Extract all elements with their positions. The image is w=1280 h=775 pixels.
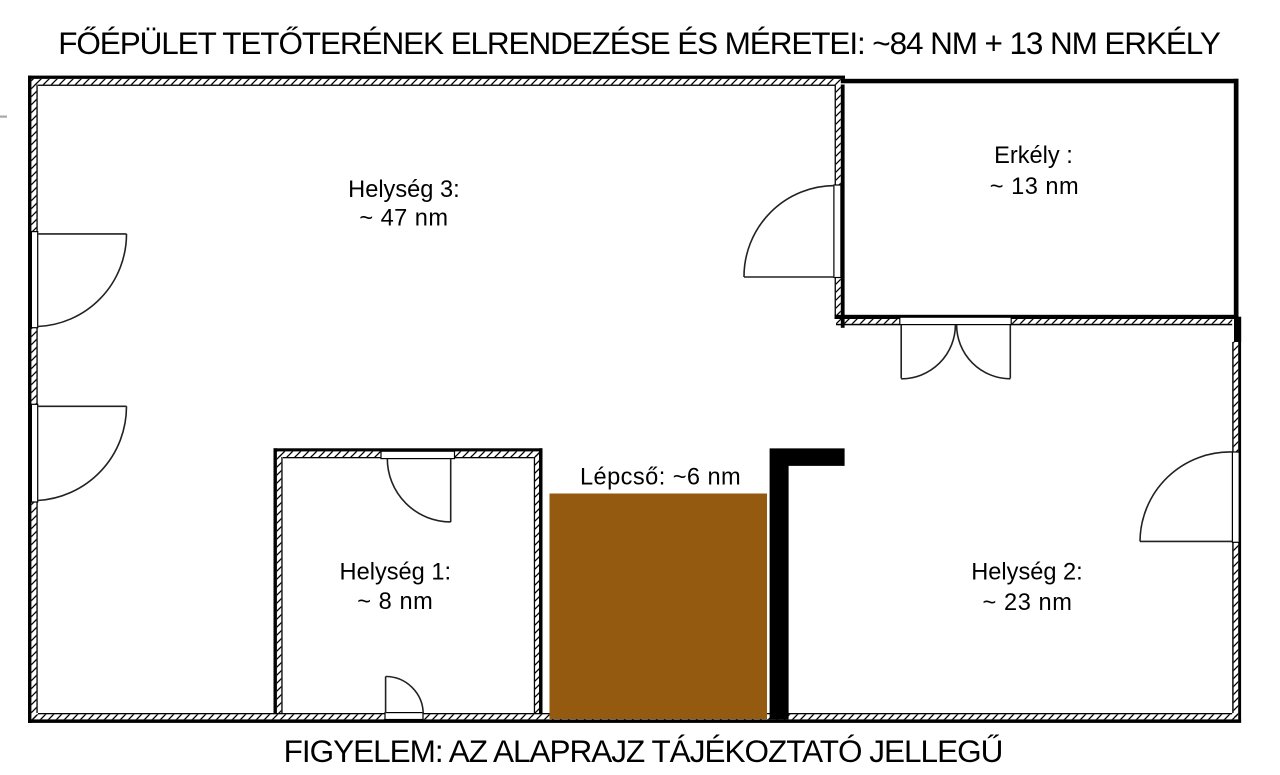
svg-text:Helység 2:: Helység 2: <box>971 559 1082 585</box>
svg-text:Lépcső: ~6 nm: Lépcső: ~6 nm <box>580 465 741 491</box>
svg-text:FIGYELEM: AZ ALAPRAJZ TÁJÉKOZT: FIGYELEM: AZ ALAPRAJZ TÁJÉKOZTATÓ JELLEG… <box>284 733 1003 769</box>
svg-text:Helység 3:: Helység 3: <box>348 177 459 203</box>
svg-text:~ 8 nm: ~ 8 nm <box>357 589 433 615</box>
svg-text:FŐÉPÜLET TETŐTERÉNEK ELRENDEZÉ: FŐÉPÜLET TETŐTERÉNEK ELRENDEZÉSE ÉS MÉRE… <box>58 25 1221 61</box>
svg-text:Erkély :: Erkély : <box>994 143 1073 169</box>
svg-text:Helység 1:: Helység 1: <box>340 559 451 585</box>
svg-text:~ 13 nm: ~ 13 nm <box>990 174 1079 200</box>
svg-text:~ 23 nm: ~ 23 nm <box>983 590 1073 616</box>
svg-text:~ 47 nm: ~ 47 nm <box>359 206 448 232</box>
